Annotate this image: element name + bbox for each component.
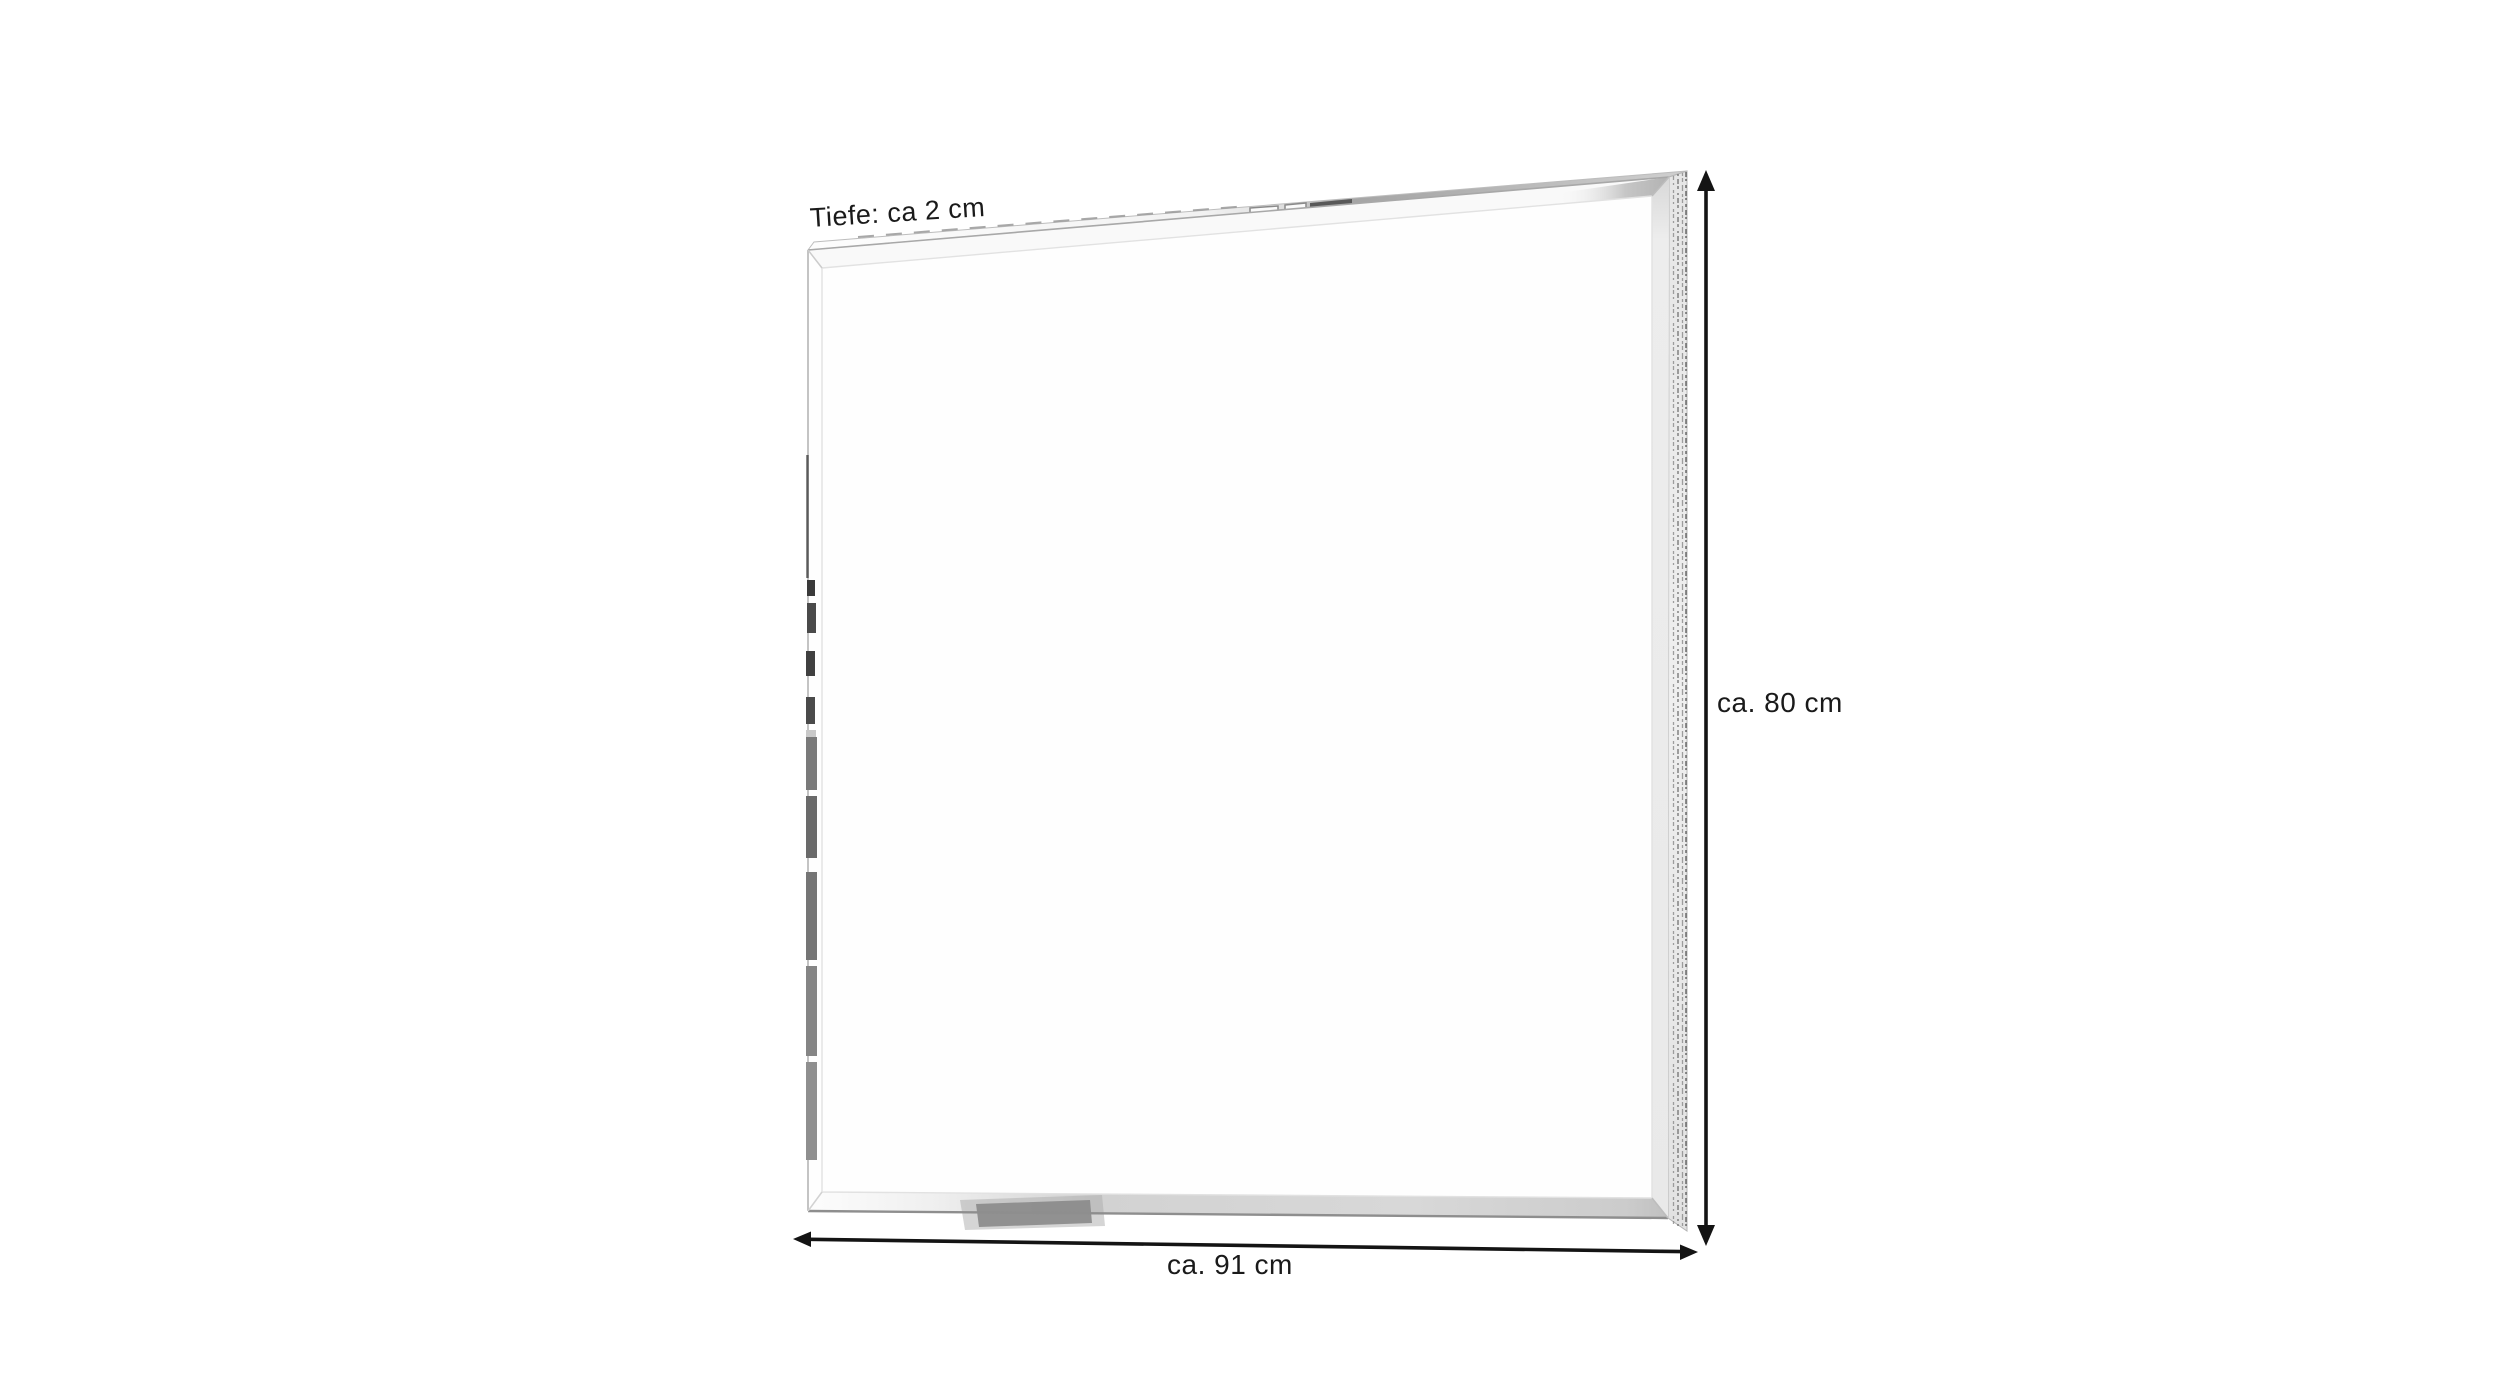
arrowhead-right-icon xyxy=(1680,1245,1698,1261)
mirror-right-bevel xyxy=(1652,177,1669,1218)
mirror-front-face xyxy=(808,177,1669,1218)
product-dimension-diagram: Tiefe: ca 2 cm ca. 80 cm ca. 91 cm xyxy=(0,0,2500,1400)
height-dimension-arrow xyxy=(1697,170,1715,1246)
arrowhead-down-icon xyxy=(1697,1225,1715,1246)
arrowhead-left-icon xyxy=(793,1232,811,1248)
width-dimension-label: ca. 91 cm xyxy=(1167,1250,1293,1281)
height-dimension-label: ca. 80 cm xyxy=(1717,688,1843,719)
arrowhead-up-icon xyxy=(1697,170,1715,191)
mirror-illustration xyxy=(0,0,2500,1400)
